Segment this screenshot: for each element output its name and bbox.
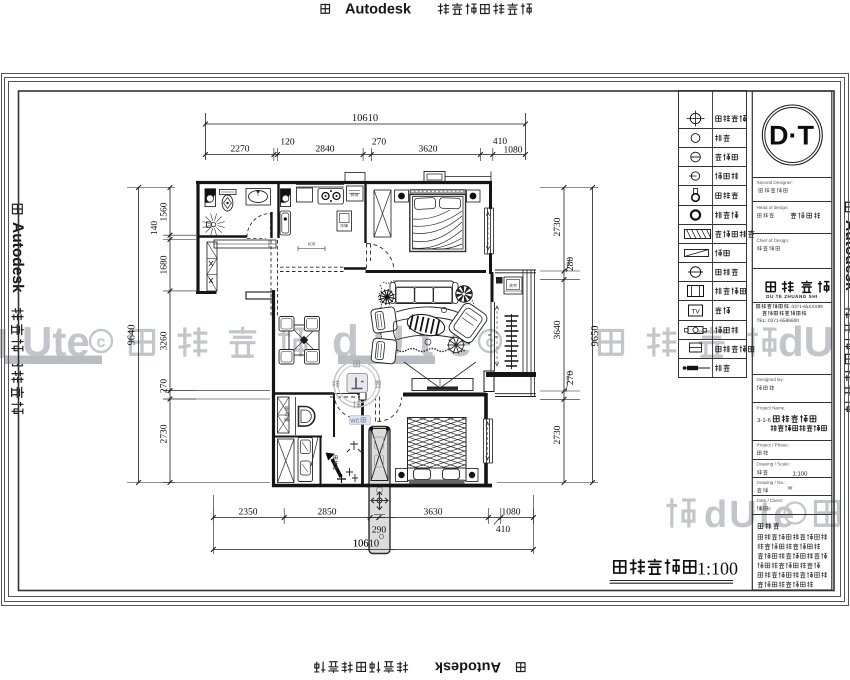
svg-text:280: 280: [566, 257, 576, 272]
svg-text:1680: 1680: [160, 255, 170, 274]
svg-text:2730: 2730: [553, 217, 563, 236]
svg-text:1560: 1560: [160, 202, 170, 221]
svg-text:120: 120: [280, 138, 295, 148]
svg-text:Project Name:: Project Name:: [757, 406, 786, 411]
svg-text:1:100: 1:100: [697, 559, 738, 579]
svg-text:Date / Client:: Date / Client:: [757, 498, 784, 503]
svg-text:Designed By:: Designed By:: [757, 377, 784, 382]
svg-text:140: 140: [150, 221, 160, 236]
svg-text:WC: WC: [350, 419, 359, 425]
svg-text:2730: 2730: [553, 425, 563, 444]
svg-text:3640: 3640: [553, 320, 563, 339]
svg-text:DU TE ZHUANG SHI: DU TE ZHUANG SHI: [766, 294, 818, 299]
svg-text:2730: 2730: [160, 424, 170, 443]
svg-text:2850: 2850: [318, 508, 337, 518]
svg-text:Chief of Design:: Chief of Design:: [757, 238, 790, 243]
svg-text:D·T: D·T: [769, 121, 814, 151]
svg-text:3630: 3630: [424, 508, 443, 518]
svg-text:410: 410: [496, 525, 511, 535]
svg-text:c: c: [486, 334, 495, 351]
svg-text:10610: 10610: [352, 113, 378, 124]
svg-text:TV: TV: [691, 308, 700, 315]
svg-text:3620: 3620: [419, 145, 438, 155]
svg-text:2840: 2840: [316, 145, 335, 155]
svg-text:Drawing / No.:: Drawing / No.:: [757, 480, 786, 485]
svg-text:600: 600: [308, 242, 316, 248]
svg-text:2270: 2270: [231, 145, 250, 155]
svg-text:: 0371-65XXX88: : 0371-65XXX88: [789, 304, 823, 309]
svg-text:1080: 1080: [502, 508, 521, 518]
svg-text:3-1-6: 3-1-6: [757, 417, 772, 424]
svg-text:2350: 2350: [239, 508, 258, 518]
svg-text:270: 270: [372, 138, 387, 148]
svg-text:290: 290: [372, 526, 387, 536]
svg-text:1:100: 1:100: [792, 471, 808, 478]
svg-text:9640: 9640: [127, 325, 138, 346]
svg-text:Autodesk: Autodesk: [9, 222, 26, 293]
svg-text:9650: 9650: [590, 326, 601, 347]
svg-text:1080: 1080: [504, 146, 523, 156]
svg-text:dU: dU: [778, 318, 834, 365]
svg-text:Autodesk: Autodesk: [434, 659, 501, 675]
svg-text:3260: 3260: [160, 331, 170, 350]
svg-text:微波: 微波: [351, 192, 359, 197]
svg-text:洗衣: 洗衣: [509, 283, 517, 288]
svg-text:Head of design:: Head of design:: [757, 205, 789, 210]
svg-text:冰箱: 冰箱: [340, 223, 348, 228]
svg-text:Autodesk: Autodesk: [345, 2, 412, 18]
svg-text:Project / Phase:: Project / Phase:: [757, 443, 789, 448]
svg-text:Drawing / Scale:: Drawing / Scale:: [757, 462, 790, 467]
svg-text:W: W: [788, 486, 793, 492]
svg-text:Second Designer:: Second Designer:: [757, 180, 794, 185]
svg-text:c: c: [97, 334, 106, 351]
svg-text:TEL: 0371-6586600: TEL: 0371-6586600: [757, 318, 800, 324]
svg-text:270: 270: [160, 379, 170, 394]
svg-text:10610: 10610: [353, 539, 379, 550]
